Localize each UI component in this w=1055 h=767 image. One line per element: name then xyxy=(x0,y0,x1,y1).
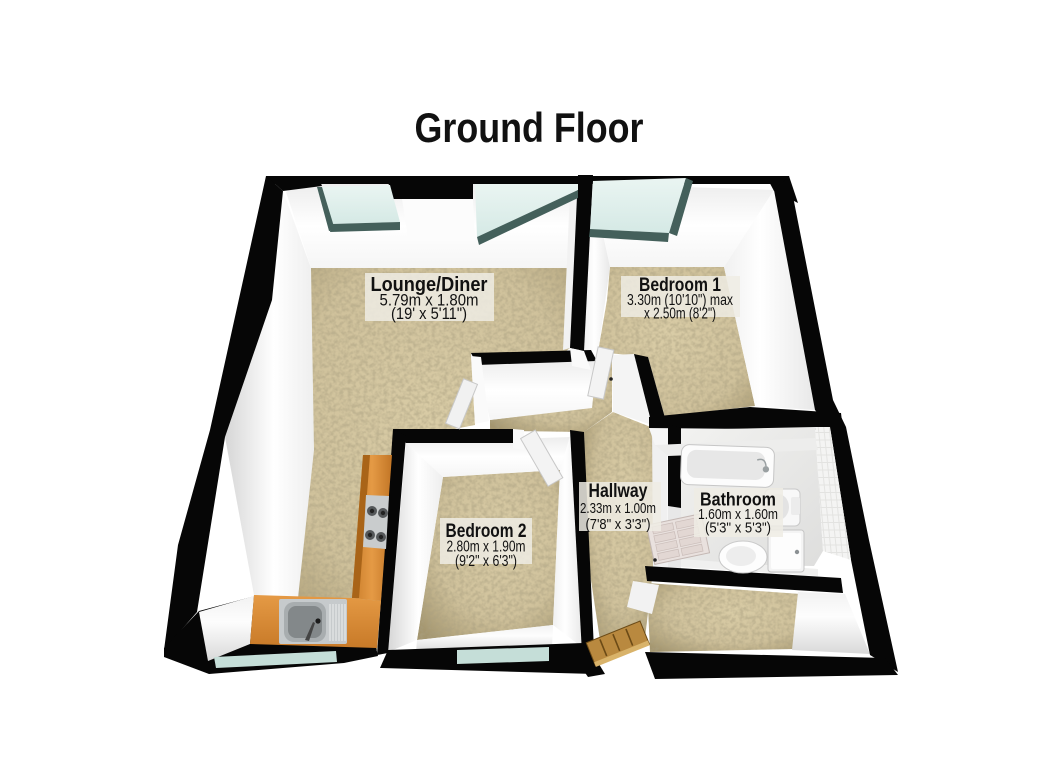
svg-text:Ground Floor: Ground Floor xyxy=(415,104,644,151)
svg-text:Hallway: Hallway xyxy=(589,481,648,502)
svg-text:x 2.50m (8'2"): x 2.50m (8'2") xyxy=(644,306,716,323)
svg-text:(19' x 5'11"): (19' x 5'11") xyxy=(391,305,467,323)
svg-text:(7'8" x 3'3"): (7'8" x 3'3") xyxy=(586,516,651,533)
svg-text:2.33m x 1.00m: 2.33m x 1.00m xyxy=(580,500,656,517)
svg-text:(9'2" x 6'3"): (9'2" x 6'3") xyxy=(455,553,517,570)
svg-text:(5'3" x 5'3"): (5'3" x 5'3") xyxy=(705,520,771,537)
